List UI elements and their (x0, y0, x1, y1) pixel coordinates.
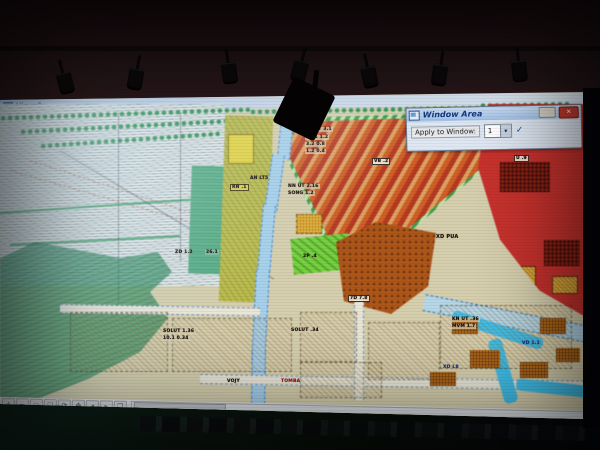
check-icon[interactable]: ✓ (516, 125, 524, 135)
map-label: ZD 1.2 (175, 250, 193, 255)
stage-light-icon (126, 67, 145, 91)
map-label: 3.2 0.8 (305, 142, 326, 147)
map-label: KN UT .36 (451, 317, 480, 322)
map-label: SONG 1.2 (287, 191, 315, 196)
chevron-down-icon[interactable]: ▾ (500, 125, 511, 137)
map-label: MVM 1.7 (451, 324, 476, 329)
stage-light-icon (360, 65, 379, 90)
map-label: 1.2 0.4 (305, 149, 326, 154)
stage-light-icon (511, 59, 528, 82)
lighting-truss (0, 46, 600, 51)
map-label: SOLUT 1.36 (162, 329, 195, 334)
close-icon[interactable]: ✕ (559, 106, 579, 118)
map-label: 10.1 0.34 (162, 336, 190, 341)
map-label: SOLUT .34 (290, 328, 320, 333)
dialog-title: Window Area (423, 108, 536, 119)
map-label: NN UT 2.16 (287, 184, 320, 189)
stage-light-icon (431, 63, 449, 87)
map-label: 7D 7.8 (348, 295, 370, 302)
window-area-icon (409, 110, 420, 120)
map-label: AN LT5 (250, 176, 268, 181)
map-label: XD PUA (436, 234, 458, 240)
map-label: 2P .4 (303, 254, 317, 259)
stage-light-icon (221, 61, 239, 85)
window-number-value: 1 (485, 127, 500, 135)
window-number-dropdown[interactable]: 1 ▾ (484, 124, 512, 139)
stage-light-icon (55, 70, 75, 95)
map-label: VB .2 (372, 158, 390, 165)
map-label: RN .1 (230, 184, 249, 191)
map-label: 26.1 (205, 250, 219, 255)
map-label: TOMBA (281, 379, 300, 384)
map-label: XD L8 (443, 365, 459, 370)
map-label: VOJY (227, 379, 240, 384)
map-label: U .9 (514, 155, 529, 162)
dark-room-edge (583, 88, 600, 428)
window-area-dialog: Window Area ✕ Apply to Window: 1 ▾ ✓ (406, 104, 583, 152)
dialog-pin-button[interactable] (539, 107, 556, 118)
map-label: VD 1.1 (522, 341, 540, 346)
apply-to-window-label: Apply to Window: (411, 125, 480, 138)
photo-of-projected-screen: View 1 (0, 0, 600, 450)
